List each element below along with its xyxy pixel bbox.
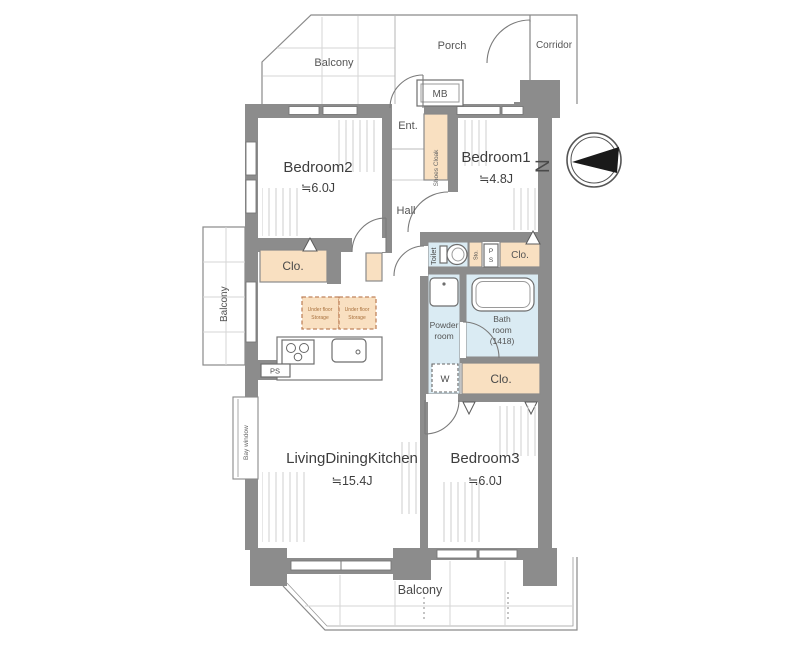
pipe-space-s: S bbox=[489, 257, 494, 264]
bedroom3-label: Bedroom3 bbox=[450, 450, 519, 467]
bath-room-label-1: Bath bbox=[493, 314, 511, 324]
small-storage-strip bbox=[366, 253, 382, 281]
window bbox=[246, 142, 256, 175]
bedroom1-label: Bedroom1 bbox=[461, 149, 530, 166]
bay-window-label: Bay window bbox=[243, 425, 250, 460]
porch-label: Porch bbox=[438, 40, 467, 52]
ldk-label: LivingDiningKitchen bbox=[286, 450, 418, 467]
bath-room-label-3: (1418) bbox=[490, 336, 515, 346]
balcony-bottom-label: Balcony bbox=[398, 583, 443, 597]
hall-label: Hall bbox=[397, 205, 416, 217]
kitchen-sink-icon bbox=[332, 339, 366, 362]
closet-right-label: Clo. bbox=[511, 250, 529, 261]
powder-room-label-1: Powder bbox=[430, 320, 459, 330]
balcony-door-window bbox=[246, 282, 256, 342]
toilet-label: Toilet bbox=[429, 247, 438, 265]
under-floor-storage-box bbox=[339, 297, 376, 329]
stove-icon bbox=[282, 340, 314, 364]
window bbox=[246, 180, 256, 213]
bedroom3-door-opening bbox=[426, 394, 458, 402]
bedroom3-window bbox=[437, 550, 477, 558]
powder-room-label-2: room bbox=[434, 331, 453, 341]
under-floor-label-1b: Storage bbox=[311, 315, 329, 321]
meter-box-label: MB bbox=[433, 89, 448, 100]
ldk-size: ≒15.4J bbox=[331, 474, 372, 488]
bedroom3-window bbox=[479, 550, 517, 558]
window bbox=[502, 107, 523, 115]
kitchen-counter bbox=[277, 337, 382, 380]
closet-left-label: Clo. bbox=[282, 259, 303, 273]
bedroom2-size: ≒6.0J bbox=[301, 181, 335, 195]
bedroom2-door-opening bbox=[352, 238, 386, 252]
shoes-cloak-label: Shoes Cloak bbox=[433, 149, 440, 187]
bedroom1-door-opening bbox=[448, 192, 458, 232]
bath-room-label-2: room bbox=[492, 325, 511, 335]
toilet-icon bbox=[440, 245, 467, 265]
under-floor-label-1a: Under floor bbox=[308, 307, 333, 313]
window bbox=[323, 107, 357, 115]
bathtub-icon bbox=[472, 278, 534, 311]
floor-plan-page: N Balcony Porch Corridor MB Ent. Shoes C… bbox=[0, 0, 798, 645]
compass-north-label: N bbox=[533, 159, 554, 173]
bath-door-opening bbox=[460, 322, 466, 358]
corridor-label: Corridor bbox=[536, 40, 573, 51]
under-floor-storage-box bbox=[302, 297, 339, 329]
sink-icon bbox=[430, 278, 458, 306]
under-floor-label-2a: Under floor bbox=[345, 307, 370, 313]
toilet-door-opening bbox=[420, 246, 428, 276]
bedroom1-size: ≒4.8J bbox=[479, 172, 513, 186]
washer-space-label: W bbox=[441, 374, 450, 385]
entrance-label: Ent. bbox=[398, 120, 418, 132]
window bbox=[289, 107, 319, 115]
sto-label: Sto. bbox=[474, 250, 480, 260]
closet-bottom-label: Clo. bbox=[490, 372, 511, 386]
north-arrow bbox=[572, 147, 619, 173]
bedroom3-size: ≒6.0J bbox=[468, 474, 502, 488]
bedroom2-label: Bedroom2 bbox=[283, 159, 352, 176]
kitchen-ps-label: PS bbox=[270, 367, 280, 376]
pipe-space-p: P bbox=[489, 248, 493, 255]
balcony-left-label: Balcony bbox=[219, 286, 230, 322]
balcony-top-label: Balcony bbox=[314, 57, 354, 69]
floor-plan-drawing: N Balcony Porch Corridor MB Ent. Shoes C… bbox=[0, 0, 798, 645]
window bbox=[457, 107, 500, 115]
under-floor-label-2b: Storage bbox=[348, 315, 366, 321]
